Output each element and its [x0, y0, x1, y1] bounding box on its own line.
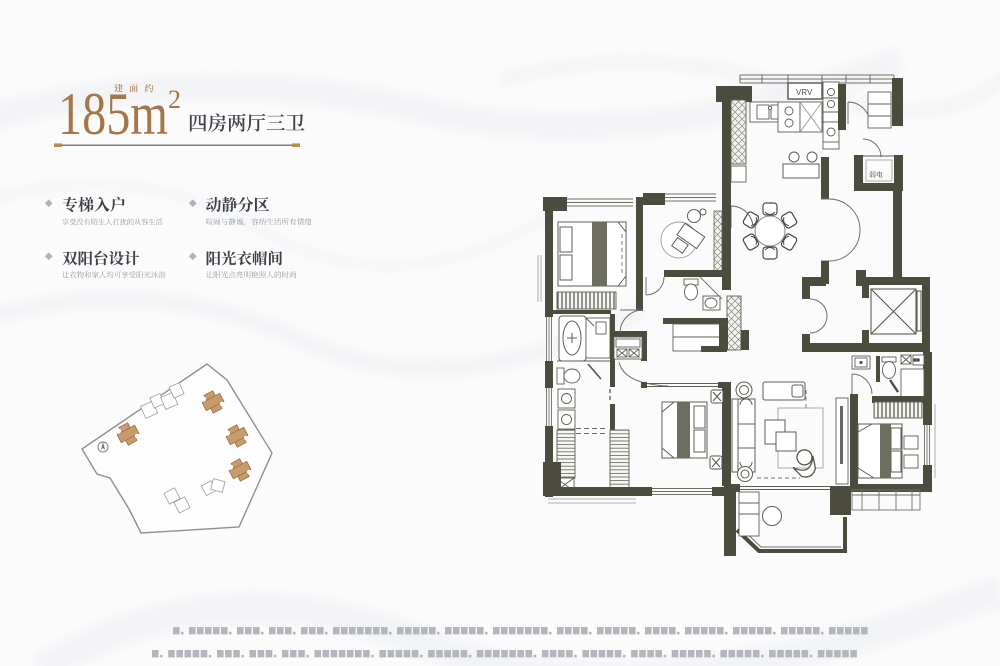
svg-text:185m: 185m — [58, 81, 168, 147]
svg-text:2: 2 — [168, 85, 181, 114]
svg-text:VRV: VRV — [796, 88, 813, 97]
